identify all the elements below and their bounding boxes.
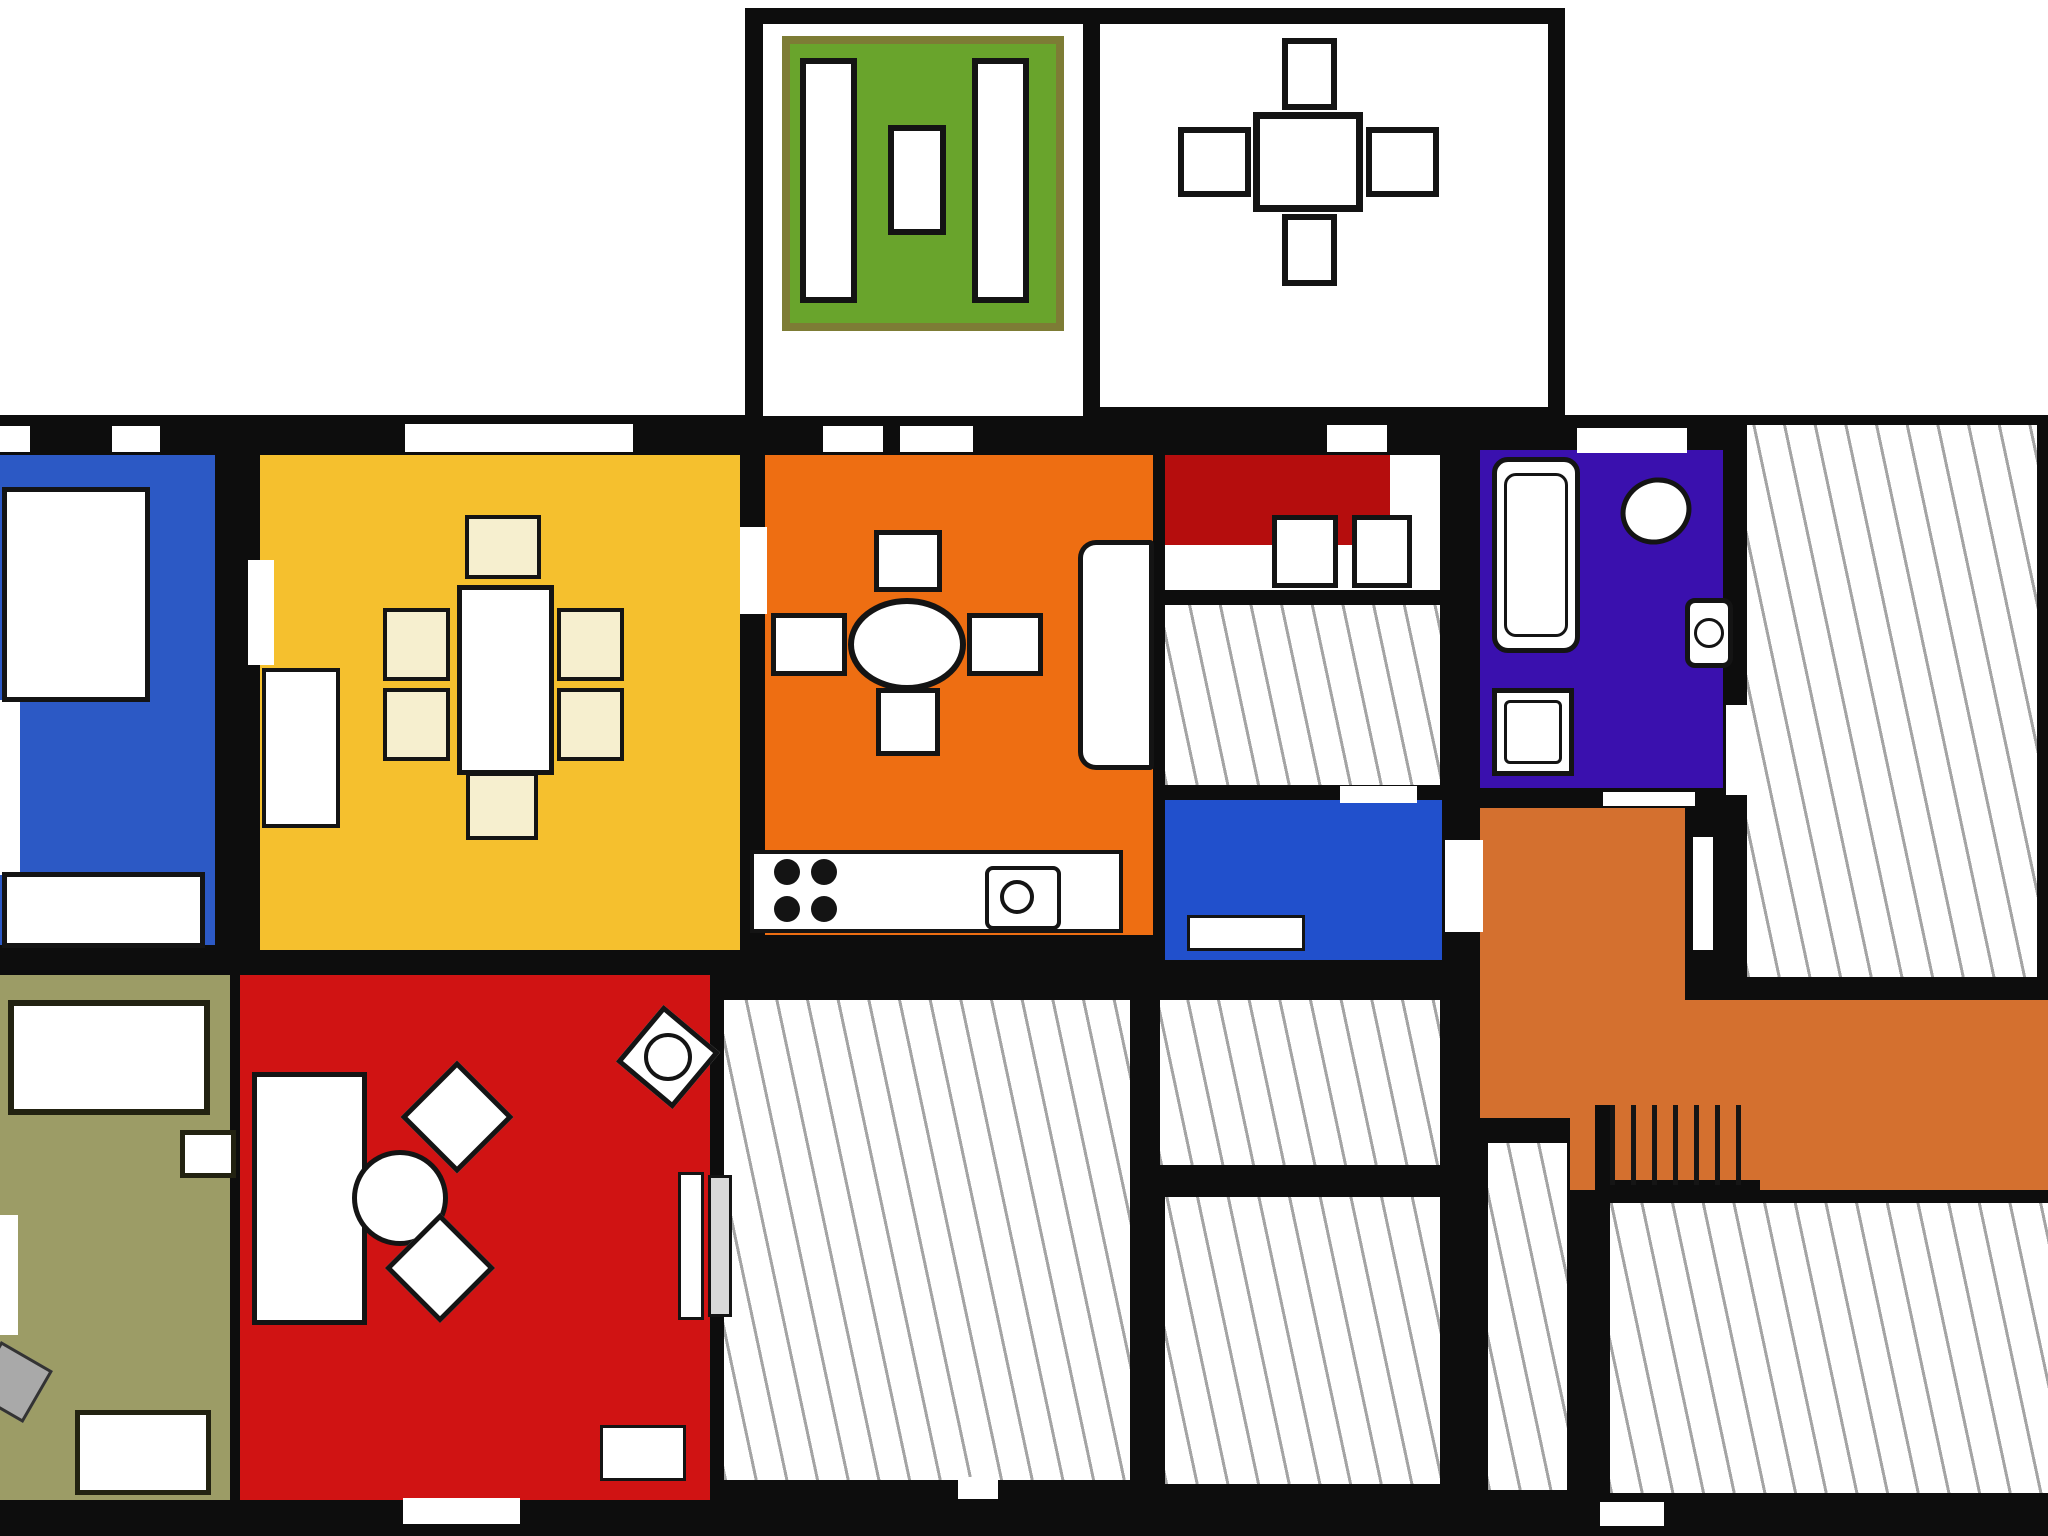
door-living-bottom <box>403 1498 520 1524</box>
kitchen-chair-west <box>771 613 847 676</box>
terrace-chair-east <box>1366 127 1439 197</box>
dining-chair-east-2 <box>557 688 624 761</box>
washing-machine-inner <box>1504 700 1562 764</box>
stairs <box>1610 1105 1757 1185</box>
window-study-left <box>0 1215 18 1335</box>
wc-fixture-2 <box>1352 515 1412 588</box>
kitchen-counter <box>750 850 1123 933</box>
bed-bedroom <box>2 487 150 702</box>
room-hatch-mid-upper <box>1165 605 1440 785</box>
study-side-table <box>180 1130 236 1178</box>
window-kitchen-1 <box>823 426 883 452</box>
kitchen-chair-north <box>874 530 942 592</box>
study-table <box>75 1410 211 1495</box>
living-door-leaf-1 <box>678 1172 704 1320</box>
terrace-side-table <box>888 125 946 235</box>
kitchen-bench <box>1078 540 1154 770</box>
door-bottom-center-notch <box>958 1477 998 1499</box>
kitchen-sink-basin <box>1000 880 1034 914</box>
room-hatch-bottom-right <box>1610 1203 2048 1493</box>
window-top-left-1 <box>0 426 30 452</box>
bathtub-inner <box>1504 473 1568 637</box>
window-top-left-2 <box>112 426 160 452</box>
wall-bottom <box>0 1500 2048 1536</box>
dining-chair-west-1 <box>383 608 450 681</box>
living-bottom-cabinet <box>600 1425 686 1481</box>
window-bathroom <box>1577 428 1687 453</box>
window-wc <box>1327 425 1387 452</box>
room-hatch-mid-center <box>1160 1000 1440 1165</box>
door-topright-room <box>1726 705 1748 795</box>
bathroom-toilet-inner <box>1694 618 1724 648</box>
living-door-leaf-2 <box>708 1175 732 1317</box>
terrace-chair-south <box>1282 214 1337 286</box>
stove-burner-1 <box>774 859 800 885</box>
dining-sideboard <box>262 668 340 828</box>
toilet-room-shelf <box>1187 915 1305 951</box>
room-hatch-top-right <box>1747 425 2037 977</box>
terrace-chair-west <box>1178 127 1251 197</box>
stove-burner-4 <box>811 896 837 922</box>
room-hatch-bottom-center <box>724 1000 1130 1480</box>
door-bedroom-dining <box>248 560 274 665</box>
door-toilet-side <box>1445 840 1483 932</box>
door-bottom-right <box>1600 1502 1664 1526</box>
terrace-chair-north <box>1282 38 1337 110</box>
dresser-bedroom <box>2 872 205 948</box>
room-hatch-sliver <box>1488 1143 1567 1490</box>
wc-fixture-1 <box>1272 515 1338 588</box>
sun-lounger-right <box>972 58 1029 303</box>
door-toilet-top <box>1340 786 1417 803</box>
dining-chair-west-2 <box>383 688 450 761</box>
window-kitchen-2 <box>900 426 973 452</box>
stove-burner-2 <box>811 859 837 885</box>
sun-lounger-left <box>800 58 857 303</box>
dining-table <box>457 585 554 775</box>
window-bedroom-left <box>0 700 20 875</box>
dining-chair-south <box>466 772 538 840</box>
room-hatch-mid-lower <box>1165 1197 1440 1484</box>
dining-chair-east-1 <box>557 608 624 681</box>
window-dining <box>405 424 633 452</box>
living-sofa <box>252 1072 367 1325</box>
floor-plan-canvas <box>0 0 2048 1536</box>
kitchen-table-oval <box>848 598 966 691</box>
dining-chair-north <box>465 515 541 579</box>
kitchen-chair-south <box>876 688 940 756</box>
terrace-table <box>1253 112 1363 212</box>
door-dining-kitchen <box>740 527 767 614</box>
kitchen-chair-east <box>967 613 1043 676</box>
door-hallway-side <box>1693 837 1713 950</box>
study-sofa <box>8 1000 210 1115</box>
stove-burner-3 <box>774 896 800 922</box>
living-diamond-chair-3-seat <box>644 1033 692 1081</box>
door-bath-hallway <box>1603 792 1695 806</box>
